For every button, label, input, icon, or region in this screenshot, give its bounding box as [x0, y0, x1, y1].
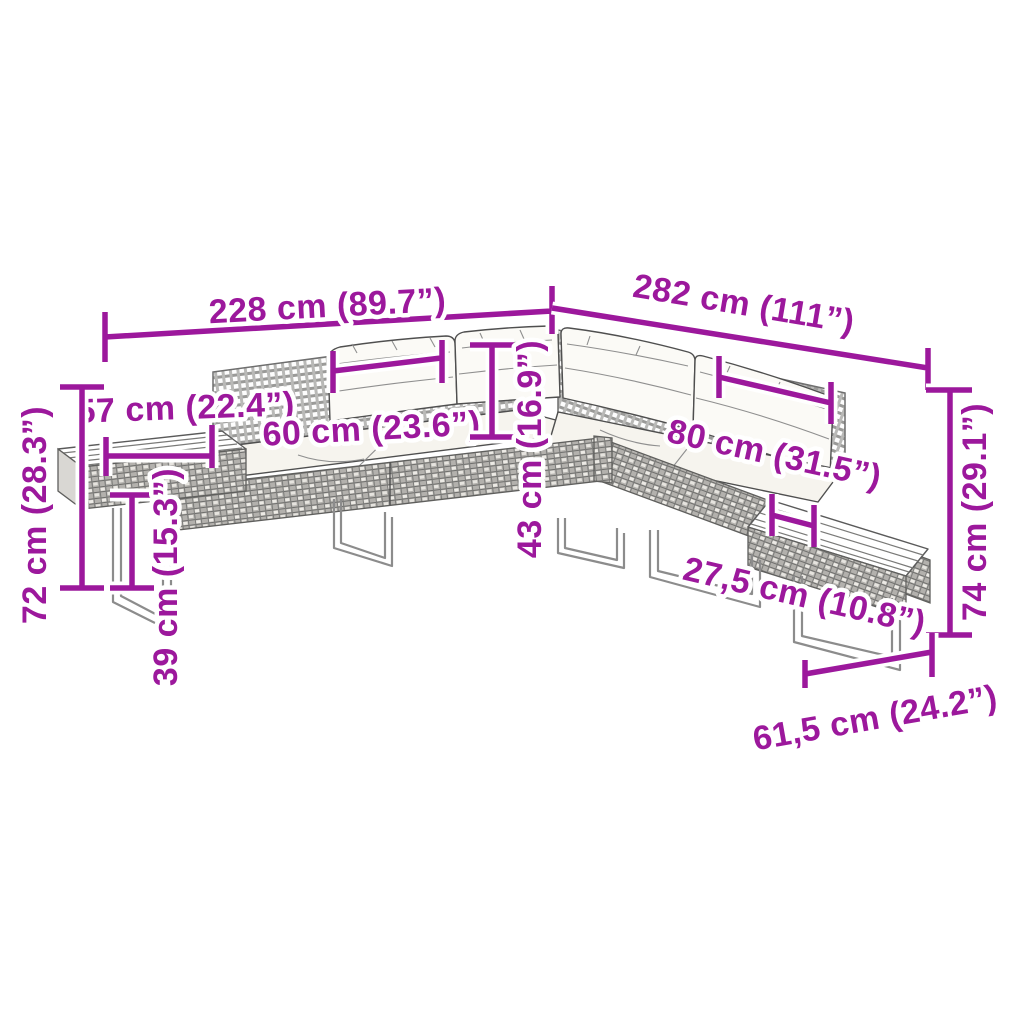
dimension-label: 39 cm (15.3”) [147, 468, 185, 686]
dimension-overall-height-right: 74 cm (29.1”) [926, 390, 994, 635]
dimension-label: 74 cm (29.1”) [956, 403, 994, 621]
dimension-label: 43 cm (16.9”) [511, 340, 549, 558]
dimension-diagram-page: 228 cm (89.7”) 282 cm (111”) 57 cm (22.4… [0, 0, 1024, 1024]
dimension-diagram-canvas: 228 cm (89.7”) 282 cm (111”) 57 cm (22.4… [0, 0, 1024, 1024]
corner-post [594, 436, 612, 483]
dimension-label: 61,5 cm (24.2”) [750, 678, 1000, 758]
sled-leg-corner [558, 518, 624, 568]
dimension-label: 72 cm (28.3”) [16, 406, 54, 624]
dimension-annotations: 228 cm (89.7”) 282 cm (111”) 57 cm (22.4… [16, 267, 1000, 758]
dimension-side-table-depth: 61,5 cm (24.2”) [750, 633, 1000, 758]
